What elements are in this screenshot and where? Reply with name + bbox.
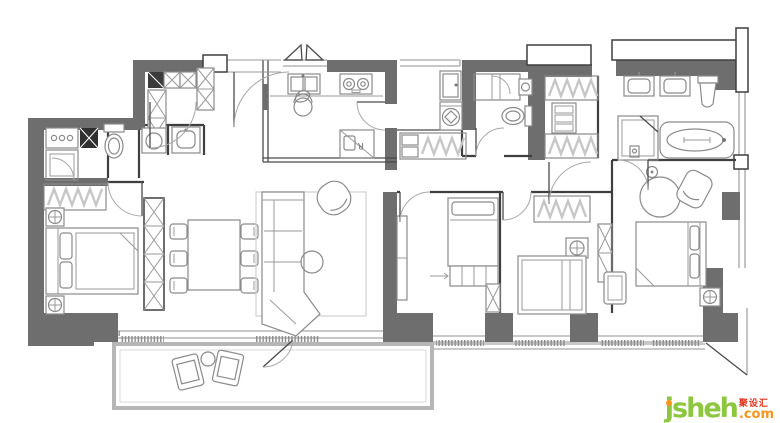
closet-door: [549, 162, 591, 204]
floor-plan-drawing: R: [0, 0, 780, 423]
master-bench: [604, 272, 626, 304]
watermark-suffix: .com: [739, 409, 774, 421]
bathroom1-basin: [142, 128, 166, 153]
watermark-j-dot: [666, 400, 672, 406]
master-bath-shower: [618, 116, 658, 160]
kitchen-door: [357, 102, 385, 130]
bathroom2-door: [476, 128, 504, 156]
fridge-glyph: R: [358, 140, 364, 150]
washing-machine: [440, 102, 462, 130]
watermark-logo: jsheh 聚设汇 .com: [665, 398, 774, 421]
bathroom2-shower: [474, 74, 520, 100]
master-nightstand: [700, 288, 720, 306]
bedroom1-wardrobe: [44, 184, 106, 210]
bedroom2-door: [400, 192, 430, 222]
bedroom2-arrow: [430, 273, 448, 279]
bedroom1-door: [108, 182, 142, 216]
bedroom3-bed: [518, 256, 586, 314]
bedroom3-nightstand: [566, 238, 588, 258]
bathroom1-shower: [46, 150, 78, 180]
bedroom1-nightstand-top: [46, 208, 64, 226]
watermark-brand: jsheh: [665, 398, 737, 421]
bedroom2-bed: [448, 198, 498, 286]
master-vanity: [640, 167, 715, 218]
kitchen-cooktop: [340, 74, 372, 94]
bathroom1-toilet: [104, 124, 124, 158]
bathtub: [660, 122, 734, 158]
entry-casement-window: [285, 45, 323, 60]
master-bath-toilet: [698, 76, 718, 107]
hall-coat-closet: [400, 133, 466, 159]
master-bed: [636, 222, 706, 286]
sofa: [262, 192, 320, 336]
bathroom2-basin: [519, 79, 532, 95]
bedroom1-nightstand-bottom: [46, 296, 64, 314]
water-heater: [440, 71, 461, 100]
armchair: [312, 176, 357, 221]
bedroom2-column: [486, 284, 500, 312]
refrigerator: R: [340, 130, 374, 158]
bedroom2-desk: [397, 216, 407, 300]
bathroom2-toilet: [502, 106, 532, 126]
balcony-table: [201, 352, 215, 366]
bathroom1-column-box: [80, 128, 98, 148]
structural-walls: [28, 60, 740, 346]
walkin-closet: [545, 76, 598, 158]
bedroom3-wardrobe: [534, 196, 590, 222]
dining-set: [170, 220, 258, 293]
bedroom1-bed: [46, 228, 138, 294]
bathroom1-counter: [46, 128, 78, 148]
bedroom3-door: [503, 192, 531, 220]
floor-plan-canvas: R: [0, 0, 780, 423]
balcony-chair-left: [172, 353, 205, 390]
entry-door: [234, 72, 289, 127]
balcony: [114, 344, 432, 408]
balcony-chair-right: [212, 350, 244, 387]
bedroom1-cabinet-column: [144, 198, 164, 310]
